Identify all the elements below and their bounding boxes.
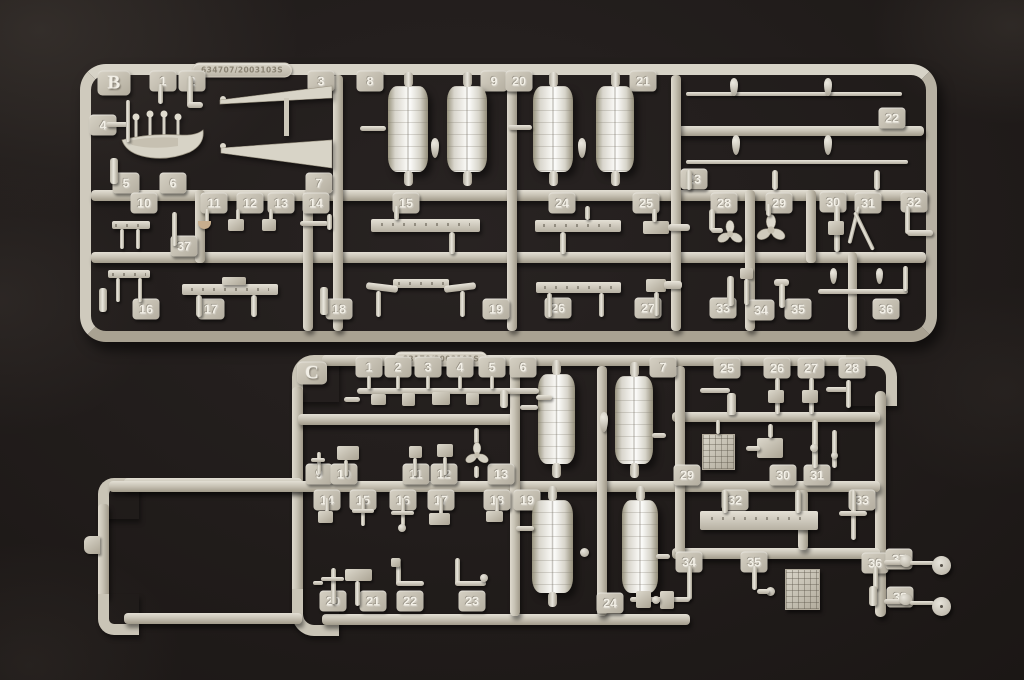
sprue-part-shape [99, 288, 107, 312]
part-number-tab-c-3: 3 [415, 357, 442, 378]
sprue-part-shape [187, 102, 203, 108]
sprue-part-shape [757, 438, 783, 458]
sprue-part-shape [652, 209, 657, 222]
sprue-part-shape [300, 221, 328, 226]
sprue-part-shape [112, 221, 150, 229]
sprue-part-shape [910, 601, 934, 605]
sprue-part-shape [466, 393, 479, 405]
part-shape-funnel-half [447, 86, 487, 172]
part-number-tab-c-6: 6 [510, 357, 537, 378]
sprue-b-mold-code-plate: 634707/2003103S [192, 63, 292, 78]
sprue-part-shape [458, 376, 462, 389]
sprue-part-shape [327, 214, 332, 230]
part-shape-propeller [464, 442, 490, 468]
sprue-part-shape [355, 581, 360, 606]
sprue-part-shape [810, 444, 818, 452]
sprue-rail [507, 75, 517, 331]
part-shape-yard-rod [686, 160, 908, 164]
sprue-b-label: B [108, 72, 121, 94]
part-number-tab-c-1: 1 [356, 357, 383, 378]
sprue-part-shape [547, 293, 552, 317]
part-number-tab-b-18: 18 [326, 299, 353, 320]
sprue-part-shape [344, 397, 360, 402]
sprue-c-extension-tab [84, 536, 100, 554]
part-shape-disc [932, 556, 951, 575]
sprue-part-shape [757, 589, 769, 594]
sprue-part-shape [779, 284, 785, 308]
sprue-part-shape [344, 460, 348, 476]
sprue-part-shape [376, 291, 381, 317]
part-number-tab-c-4: 4 [447, 357, 474, 378]
sprue-part-shape [426, 376, 430, 389]
sprue-part-shape [138, 278, 142, 302]
part-shape-funnel-half [532, 500, 573, 593]
sprue-part-shape [321, 577, 344, 581]
sprue-part-shape [903, 266, 908, 291]
sprue-part-shape [313, 581, 323, 585]
sprue-part-shape [907, 230, 933, 236]
part-number-tab-b-21: 21 [630, 71, 657, 92]
part-shape-funnel-half [615, 376, 653, 464]
sprue-part-shape [656, 554, 670, 559]
sprue-part-shape [490, 376, 494, 389]
sprue-part-shape [391, 511, 414, 515]
sprue-part-shape [585, 206, 590, 220]
sprue-part-shape [795, 490, 801, 513]
sprue-part-shape [311, 458, 325, 462]
part-shape-funnel-half [596, 86, 634, 172]
sprue-part-shape [402, 393, 415, 406]
sprue-part-shape [108, 270, 150, 278]
sprue-part-shape [668, 224, 690, 231]
part-shape-propeller [716, 220, 744, 248]
part-number-tab-b-35: 35 [785, 299, 812, 320]
part-number-tab-c-25: 25 [714, 358, 741, 379]
part-shape-mast-spars [218, 84, 338, 176]
sprue-part-shape [716, 420, 720, 434]
sprue-part-shape [331, 568, 336, 604]
sprue-part-shape [345, 569, 372, 581]
sprue-rail [298, 414, 515, 425]
part-number-tab-c-24: 24 [597, 593, 624, 614]
sprue-part-shape [766, 204, 771, 216]
part-number-tab-b-24: 24 [549, 193, 576, 214]
sprue-part-shape [120, 229, 124, 249]
sprue-part-shape [393, 279, 449, 288]
sprue-part-shape [768, 390, 784, 403]
sprue-part-shape [652, 433, 666, 438]
sprue-rail [675, 366, 685, 554]
part-number-tab-c-5: 5 [479, 357, 506, 378]
sprue-part-shape [869, 586, 877, 606]
sprue-b-mold-code: 634707/2003103S [201, 66, 283, 75]
sprue-part-shape [437, 444, 453, 457]
sprue-part-shape [116, 278, 120, 302]
part-shape-deck-strip [700, 511, 818, 530]
sprue-rail [322, 614, 690, 625]
sprue-part-shape [136, 229, 140, 249]
sprue-part-shape [828, 221, 844, 235]
sprue-part-shape [722, 490, 728, 513]
sprue-part-shape [874, 170, 880, 190]
sprue-part-shape [222, 277, 246, 285]
part-number-tab-b-16: 16 [133, 299, 160, 320]
part-number-tab-c-13: 13 [488, 464, 515, 485]
sprue-part-shape [396, 581, 424, 586]
sprue-part-shape [643, 221, 669, 234]
sprue-part-shape [660, 591, 674, 609]
sprue-part-shape [846, 380, 851, 408]
sprue-rail [597, 366, 607, 616]
sprue-part-shape [560, 232, 566, 254]
sprue-part-shape [320, 287, 328, 315]
sprue-part-shape [360, 126, 386, 131]
part-number-tab-c-27: 27 [798, 358, 825, 379]
sprue-part-shape [396, 376, 400, 389]
part-number-tab-b-30: 30 [820, 192, 847, 213]
sprue-part-shape [599, 293, 604, 317]
part-number-tab-b-36: 36 [873, 299, 900, 320]
part-shape-yard-rod [686, 92, 902, 96]
part-number-tab-c-23: 23 [459, 591, 486, 612]
sprue-part-shape [474, 466, 479, 478]
sprue-part-shape [228, 219, 244, 231]
part-shape-deck-strip [535, 220, 621, 232]
part-number-tab-b-10: 10 [131, 193, 158, 214]
part-number-tab-c-31: 31 [804, 465, 831, 486]
sprue-part-shape [646, 279, 666, 292]
sprue-part-shape [318, 511, 333, 523]
part-number-tab-b-20: 20 [506, 71, 533, 92]
sprue-b-label-plate: B [98, 71, 131, 96]
part-number-tab-b-23: 23 [681, 169, 708, 190]
sprue-part-shape [317, 452, 321, 474]
sprue-part-shape [664, 281, 682, 289]
part-shape-boat-hull [118, 108, 208, 170]
part-shape-funnel-half [533, 86, 573, 172]
sprue-rail [672, 548, 880, 559]
sprue-rail [671, 75, 681, 331]
part-number-tab-b-22: 22 [879, 108, 906, 129]
part-number-tab-b-34: 34 [748, 300, 775, 321]
sprue-part-shape [480, 574, 488, 582]
part-number-tab-b-8: 8 [357, 71, 384, 92]
sprue-part-shape [727, 276, 734, 306]
sprue-part-shape [455, 581, 486, 586]
sprue-part-shape [262, 219, 276, 231]
sprue-part-shape [580, 548, 589, 557]
part-shape-funnel-half [388, 86, 428, 172]
sprue-part-shape [839, 511, 867, 516]
part-number-tab-c-7: 7 [650, 357, 677, 378]
sprue-c-label: C [305, 362, 319, 384]
part-shape-grid-panel [785, 569, 820, 610]
part-shape-funnel-half [622, 500, 658, 593]
sprue-part-shape [429, 513, 450, 525]
part-number-tab-c-26: 26 [764, 358, 791, 379]
part-number-tab-c-21: 21 [360, 591, 387, 612]
sprue-part-shape [432, 392, 450, 405]
sprue-part-shape [409, 446, 422, 458]
part-number-tab-c-22: 22 [397, 591, 424, 612]
sprue-part-shape [352, 509, 374, 513]
sprue-part-shape [740, 268, 753, 279]
part-number-tab-b-1: 1 [150, 71, 177, 92]
sprue-part-shape [126, 100, 130, 142]
photo-of-model-kit-sprues: B 634707/2003103S 1238920214225672310111… [0, 0, 1024, 680]
part-number-tab-c-29: 29 [674, 465, 701, 486]
sprue-part-shape [251, 295, 257, 317]
sprue-part-shape [636, 591, 651, 608]
sprue-part-shape [398, 524, 406, 532]
part-number-tab-c-30: 30 [770, 465, 797, 486]
sprue-part-shape [772, 170, 778, 190]
part-shape-deck-strip [371, 219, 480, 232]
sprue-part-shape [508, 125, 532, 130]
sprue-part-shape [172, 212, 177, 246]
sprue-part-shape [520, 405, 538, 410]
sprue-part-shape [110, 158, 118, 184]
part-shape-grid-panel [702, 434, 735, 470]
part-shape-propeller [755, 214, 787, 246]
sprue-part-shape [831, 452, 838, 459]
sprue-part-shape [158, 84, 163, 104]
sprue-part-shape [910, 561, 934, 565]
sprue-part-shape [700, 388, 730, 393]
sprue-part-shape [371, 394, 386, 405]
sprue-part-shape [182, 284, 278, 295]
sprue-part-shape [196, 295, 202, 317]
sprue-part-shape [536, 395, 552, 400]
sprue-part-shape [746, 446, 760, 451]
sprue-part-shape [443, 457, 447, 475]
sprue-part-shape [516, 526, 534, 531]
sprue-part-shape [106, 122, 128, 127]
sprue-part-shape [687, 566, 692, 600]
part-number-tab-b-6: 6 [160, 173, 187, 194]
sprue-part-shape [413, 458, 417, 476]
part-number-tab-b-14: 14 [303, 193, 330, 214]
sprue-part-shape [337, 446, 359, 460]
part-number-tab-b-12: 12 [237, 193, 264, 214]
sprue-part-shape [367, 376, 371, 389]
sprue-part-shape [536, 282, 621, 293]
part-shape-funnel-half [538, 374, 575, 464]
sprue-part-shape [391, 558, 400, 567]
sprue-part-shape [768, 424, 773, 438]
sprue-part-shape [832, 430, 837, 468]
sprue-rail [124, 613, 302, 624]
sprue-part-shape [486, 511, 503, 522]
sprue-part-shape [744, 279, 749, 305]
sprue-part-shape [654, 292, 659, 316]
sprue-part-shape [652, 596, 660, 604]
part-number-tab-c-2: 2 [385, 357, 412, 378]
part-number-tab-b-9: 9 [481, 71, 508, 92]
sprue-part-shape [449, 232, 455, 254]
sprue-part-shape [752, 566, 757, 590]
sprue-part-shape [394, 206, 399, 220]
sprue-part-shape [460, 291, 465, 317]
part-number-tab-c-28: 28 [839, 358, 866, 379]
part-shape-disc [932, 597, 951, 616]
part-number-tab-b-19: 19 [483, 299, 510, 320]
sprue-part-shape [727, 393, 736, 415]
sprue-part-shape [802, 390, 818, 403]
sprue-part-shape [818, 289, 908, 294]
sprue-part-shape [686, 170, 692, 190]
sprue-part-shape [500, 390, 508, 408]
sprue-rail [806, 190, 816, 263]
sprue-c-label-plate: C [297, 362, 327, 385]
